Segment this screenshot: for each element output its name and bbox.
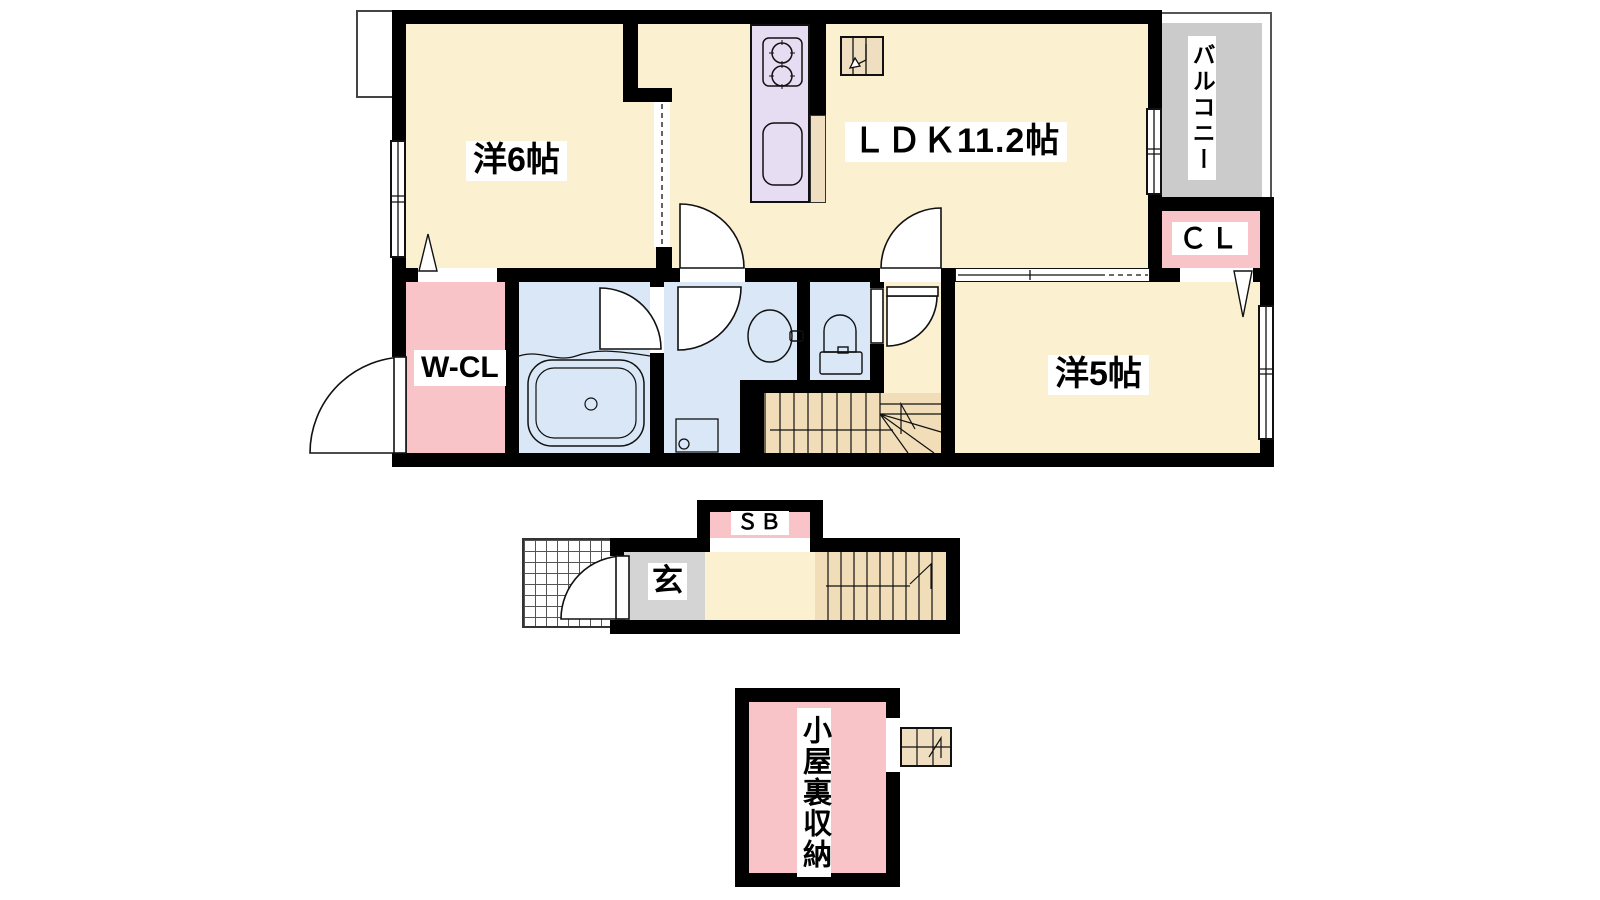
wall <box>656 247 672 282</box>
door-opening <box>880 268 941 282</box>
wall <box>1260 440 1274 467</box>
sliding-door <box>955 268 1150 282</box>
wall <box>740 393 764 467</box>
staircase-2f <box>764 393 941 453</box>
bathroom <box>519 282 650 453</box>
kitchen-counter <box>750 24 810 203</box>
storage-box-icon <box>840 36 884 76</box>
washroom <box>664 282 797 390</box>
wall <box>392 453 1274 467</box>
wall <box>1260 197 1274 305</box>
wall <box>886 688 900 718</box>
staircase-1f <box>815 552 946 620</box>
door-opening <box>870 288 884 344</box>
door-opening <box>610 556 624 620</box>
room-label-ldk: ＬＤＫ11.2帖 <box>845 122 1067 162</box>
wall <box>505 282 519 453</box>
wall <box>697 512 710 552</box>
window <box>1258 305 1274 440</box>
wall <box>623 24 638 88</box>
room-label-entrance: 玄 <box>648 563 687 600</box>
wall <box>1148 10 1162 108</box>
entrance-porch <box>522 538 618 628</box>
laundry-area <box>664 390 740 453</box>
wall <box>650 353 664 453</box>
room-label-balcony: バルコニー <box>1188 36 1216 180</box>
wall <box>735 688 900 702</box>
kitchen-side-strip <box>810 115 826 203</box>
toilet-room <box>810 282 870 380</box>
window <box>1146 108 1162 195</box>
wall <box>740 380 884 393</box>
room-label-shoe-box: ＳＢ <box>731 511 789 535</box>
wall <box>735 688 749 887</box>
room-label-walk-in-closet: W-CL <box>414 350 506 386</box>
attic-stair-box <box>900 727 952 767</box>
door-opening <box>680 268 745 282</box>
door-opening <box>650 287 664 353</box>
room-label-western6: 洋6帖 <box>466 141 567 181</box>
room-label-closet: ＣＬ <box>1172 222 1248 255</box>
wall <box>886 772 900 887</box>
wall <box>797 282 810 390</box>
wall-opening <box>654 102 670 247</box>
wall <box>497 268 680 282</box>
door-opening <box>392 357 406 453</box>
wall <box>392 268 418 282</box>
wall <box>1148 197 1274 211</box>
floor-plan: 洋6帖 ＬＤＫ11.2帖 バルコニー ＣＬ W-CL 洋5帖 玄 ＳＢ 小屋裏収… <box>0 0 1600 900</box>
wall <box>610 538 624 556</box>
door-opening <box>1180 268 1253 282</box>
wall <box>941 268 955 467</box>
door-opening <box>886 718 900 772</box>
wall <box>610 620 960 634</box>
wall <box>946 538 960 634</box>
window <box>390 140 406 258</box>
room-label-attic-storage: 小屋裏収納 <box>797 708 831 877</box>
hallway-1f <box>705 552 815 620</box>
wall <box>810 24 826 115</box>
wall <box>1162 268 1180 282</box>
wall <box>392 10 1162 24</box>
wall <box>1253 268 1260 282</box>
wall <box>392 10 406 140</box>
wall <box>623 88 672 102</box>
wall <box>745 268 880 282</box>
door-opening <box>418 268 497 282</box>
wall <box>810 512 823 552</box>
wall <box>823 538 960 552</box>
room-label-western5: 洋5帖 <box>1048 355 1149 395</box>
western5-room <box>1148 282 1260 453</box>
